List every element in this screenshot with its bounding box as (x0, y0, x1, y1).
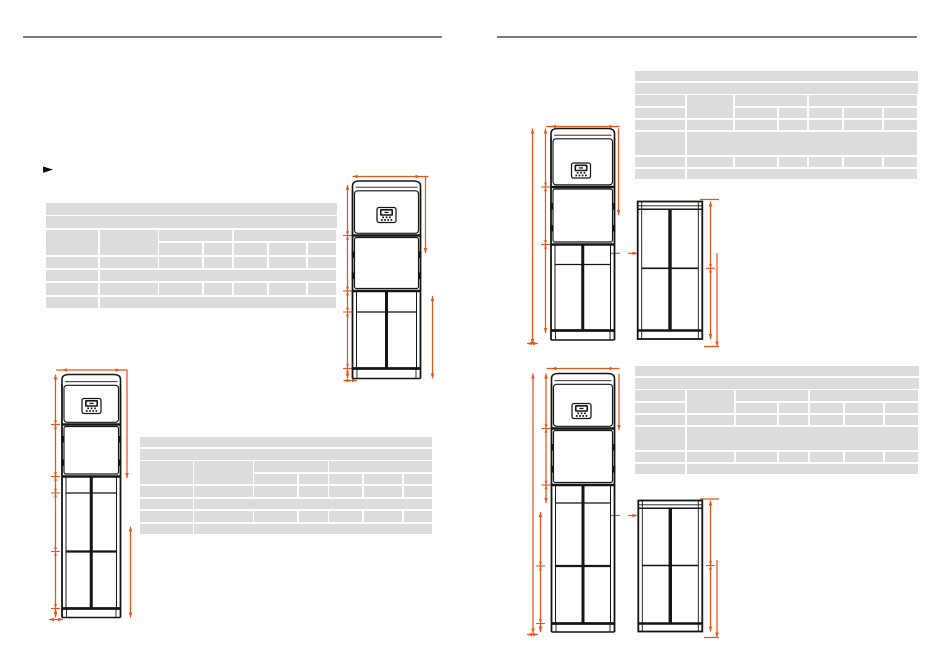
table-cell (46, 297, 98, 309)
table-cell (687, 390, 734, 413)
table-cell (779, 157, 808, 167)
list-bullet-icon: ► (43, 163, 53, 176)
table-cell (46, 216, 337, 228)
table-cell (140, 486, 193, 497)
table-cell (100, 230, 158, 255)
table-cell (100, 257, 158, 269)
table-cell (687, 120, 734, 130)
spec-table-top-right (635, 71, 918, 181)
spec-table-bottom-right (635, 366, 919, 476)
table-cell (779, 403, 808, 413)
table-cell (809, 157, 842, 167)
datasheet-page: ► (0, 0, 950, 655)
table-cell (736, 403, 778, 413)
table-cell (364, 474, 402, 485)
left-column-rule (23, 36, 442, 38)
table-cell (809, 108, 842, 118)
table-cell (159, 230, 232, 242)
table-cell (845, 452, 884, 462)
spec-table-bottom-left (140, 437, 432, 537)
table-cell (635, 71, 918, 81)
table-cell (635, 108, 686, 118)
table-cell (810, 390, 919, 400)
table-cell (635, 366, 919, 376)
table-cell (234, 283, 267, 295)
table-cell (845, 415, 884, 425)
table-cell (736, 390, 808, 400)
table-cell (194, 486, 252, 497)
table-cell (254, 486, 297, 497)
table-cell (884, 157, 917, 167)
table-cell (687, 132, 918, 155)
table-cell (100, 297, 337, 309)
table-cell (687, 464, 918, 474)
table-cell (735, 108, 777, 118)
table-cell (404, 511, 432, 522)
table-cell (635, 132, 686, 155)
table-cell (254, 461, 327, 472)
table-cell (884, 120, 917, 130)
table-cell (299, 511, 328, 522)
table-cell (810, 452, 843, 462)
table-cell (687, 415, 734, 425)
table-cell (46, 203, 337, 215)
table-cell (140, 437, 432, 448)
table-cell (635, 95, 686, 105)
table-cell (194, 499, 432, 510)
table-cell (254, 511, 297, 522)
table-cell (329, 511, 362, 522)
table-cell (46, 283, 98, 295)
table-cell (779, 120, 808, 130)
table-cell (299, 486, 328, 497)
table-cell (635, 83, 918, 93)
table-cell (635, 120, 686, 130)
table-cell (735, 95, 807, 105)
table-cell (140, 461, 193, 484)
table-cell (254, 474, 297, 485)
table-cell (735, 157, 777, 167)
table-cell (100, 270, 337, 282)
table-cell (779, 108, 808, 118)
table-cell (885, 403, 918, 413)
table-cell (635, 169, 686, 179)
table-cell (810, 415, 843, 425)
table-cell (140, 524, 193, 535)
table-cell (234, 257, 267, 269)
table-cell (46, 257, 98, 269)
table-cell (809, 95, 917, 105)
table-cell (269, 243, 307, 255)
table-cell (299, 474, 328, 485)
table-cell (635, 427, 686, 450)
table-cell (159, 257, 202, 269)
table-cell (884, 108, 917, 118)
table-cell (735, 120, 777, 130)
table-cell (779, 415, 808, 425)
table-cell (329, 486, 362, 497)
table-cell (687, 95, 734, 118)
table-cell (885, 452, 918, 462)
table-cell (159, 243, 202, 255)
table-cell (844, 157, 883, 167)
table-cell (687, 452, 734, 462)
table-cell (100, 283, 158, 295)
table-cell (204, 257, 233, 269)
table-cell (204, 283, 233, 295)
table-cell (687, 427, 918, 450)
table-cell (845, 403, 884, 413)
table-cell (635, 157, 686, 167)
table-cell (635, 378, 919, 388)
table-cell (329, 474, 362, 485)
table-cell (194, 511, 252, 522)
table-cell (736, 452, 778, 462)
table-cell (194, 524, 432, 535)
table-cell (844, 120, 883, 130)
right-column-rule (497, 36, 917, 38)
table-cell (736, 415, 778, 425)
table-cell (234, 243, 267, 255)
table-cell (635, 464, 686, 474)
table-cell (308, 243, 336, 255)
table-cell (364, 511, 402, 522)
table-cell (269, 283, 307, 295)
table-cell (140, 449, 432, 460)
spec-table-top-left (46, 203, 337, 310)
table-cell (635, 452, 686, 462)
table-cell (194, 461, 252, 484)
table-cell (46, 230, 98, 255)
table-cell (329, 461, 432, 472)
table-cell (140, 499, 193, 510)
table-cell (404, 474, 432, 485)
table-cell (269, 257, 307, 269)
table-cell (234, 230, 336, 242)
table-cell (810, 403, 843, 413)
table-cell (308, 257, 336, 269)
figure-front-view-top-left (343, 175, 434, 383)
table-cell (779, 452, 808, 462)
figure-front-view-bottom-left (49, 368, 132, 621)
table-cell (308, 283, 336, 295)
table-cell (687, 157, 734, 167)
table-cell (46, 270, 98, 282)
table-cell (204, 243, 233, 255)
table-cell (404, 486, 432, 497)
table-cell (809, 120, 842, 130)
table-cell (635, 390, 686, 400)
table-cell (844, 108, 883, 118)
table-cell (635, 403, 686, 413)
table-cell (159, 283, 202, 295)
table-cell (687, 169, 918, 179)
table-cell (885, 415, 918, 425)
table-cell (364, 486, 402, 497)
table-cell (635, 415, 686, 425)
table-cell (140, 511, 193, 522)
